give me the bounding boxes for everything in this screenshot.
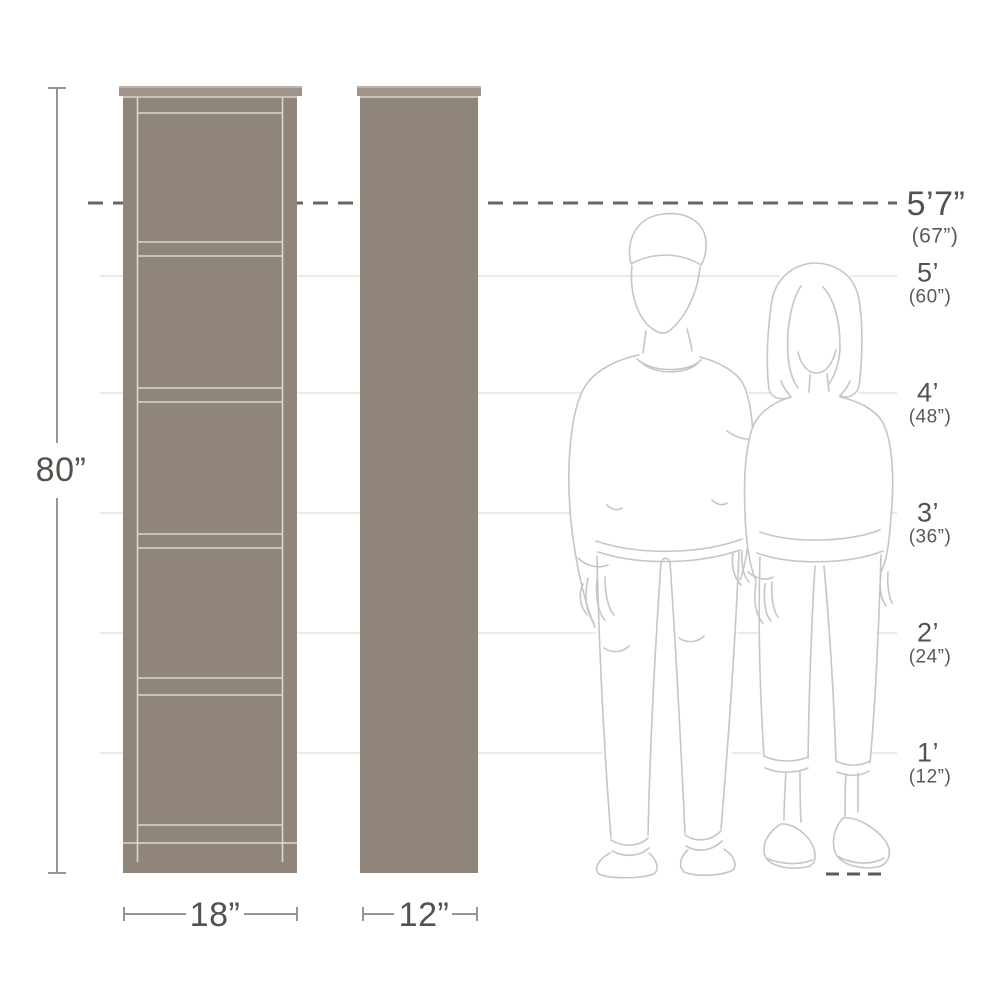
width-dimension-label: 18” — [190, 898, 241, 932]
marker-inches-label: (48”) — [909, 408, 952, 427]
marker-feet-label: 4’ — [917, 380, 939, 407]
woman-right-hand — [880, 572, 892, 606]
woman-figure — [744, 261, 894, 875]
depth-dimension-label: 12” — [399, 898, 450, 932]
height-dimension-label: 80” — [36, 453, 87, 487]
front-cabinet-body — [123, 96, 297, 873]
marker-feet-label: 1’ — [917, 740, 939, 767]
marker-feet-label: 5’ — [917, 260, 939, 287]
reference-feet-label: 5’7” — [907, 187, 966, 221]
dimension-diagram: 80” 18” 12” 5’7” (67”) 5’ (60”) 4’ (48”)… — [0, 0, 1000, 1000]
man-hair-fringe — [631, 255, 701, 265]
man-body-mask — [568, 344, 755, 874]
side-cabinet-body — [360, 96, 478, 873]
man-figure — [568, 214, 764, 878]
marker-feet-label: 3’ — [917, 500, 939, 527]
reference-inches-label: (67”) — [912, 226, 959, 247]
man-hair — [630, 214, 706, 265]
front-cabinet — [119, 86, 302, 873]
marker-inches-label: (24”) — [909, 648, 952, 667]
scale-figures — [568, 214, 893, 878]
marker-inches-label: (36”) — [909, 528, 952, 547]
diagram-canvas — [0, 0, 1000, 1000]
side-cabinet — [357, 86, 481, 873]
marker-feet-label: 2’ — [917, 620, 939, 647]
marker-inches-label: (12”) — [909, 768, 952, 787]
woman-body-mask — [744, 396, 894, 875]
woman-hair-mask — [767, 261, 863, 395]
marker-inches-label: (60”) — [909, 288, 952, 307]
